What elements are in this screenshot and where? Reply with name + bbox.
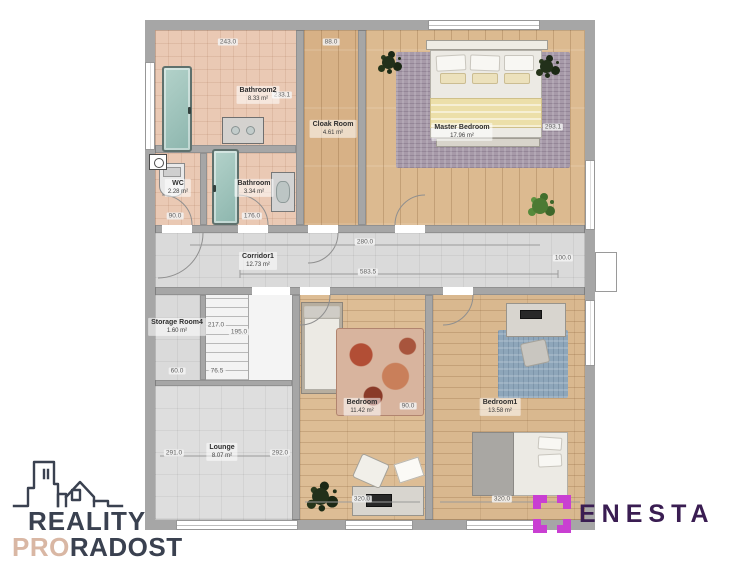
dimension-label: 60.0 [169, 368, 186, 375]
pillow [472, 73, 498, 84]
dimension-label: 320.0 [492, 496, 512, 503]
room-label-wc: WC2.28 m² [165, 179, 191, 197]
room-label-bathroom2: Bathroom28.33 m² [237, 86, 280, 104]
room-name: Cloak Room [313, 121, 354, 130]
room-name: Corridor1 [242, 253, 274, 262]
room-name: WC [168, 180, 188, 189]
room-name: Storage Room4 [151, 319, 203, 328]
room-label-bedroom: Bedroom11.42 m² [344, 398, 381, 416]
dimension-label: 88.0 [323, 39, 340, 46]
room-label-bathroom: Bathroom3.34 m² [234, 179, 273, 197]
room-name: Bathroom [237, 180, 270, 189]
room-name: Bedroom [347, 399, 378, 408]
dimension-label: 195.0 [229, 329, 249, 336]
shower-bathroom2 [162, 66, 192, 152]
window-bedroom-bottom [345, 520, 413, 530]
room-area: 4.61 m² [313, 130, 354, 138]
room-label-lounge: Lounge8.07 m² [206, 443, 237, 461]
bedroom1-blanket [472, 432, 514, 496]
enesta-wordmark: ENESTA [579, 500, 715, 529]
pillow [436, 54, 467, 72]
enesta-brackets-icon [533, 495, 571, 533]
room-label-master-bedroom: Master Bedroom17.96 m² [431, 123, 492, 141]
dimension-label: 583.5 [358, 269, 378, 276]
dimension-label: 100.0 [553, 255, 573, 262]
monitor-icon [520, 310, 542, 319]
floorplan-canvas: Bathroom28.33 m² WC2.28 m² Bathroom3.34 … [0, 0, 749, 562]
room-area: 12.73 m² [242, 262, 274, 270]
proradost-wordmark: PRORADOST [12, 534, 182, 561]
room-area: 11.42 m² [347, 408, 378, 416]
room-area: 1.60 m² [151, 328, 203, 336]
dimension-label: 90.0 [167, 213, 184, 220]
radost-rest: RADOST [70, 532, 183, 562]
window-lounge-bottom [176, 520, 298, 530]
room-area: 8.33 m² [240, 96, 277, 104]
plant-icon [312, 488, 329, 505]
pillow [538, 453, 563, 467]
plant-icon [382, 56, 395, 69]
enesta-logo: ENESTA [533, 495, 715, 533]
window-master-right [585, 160, 595, 230]
pillow [504, 55, 534, 71]
plant-icon [540, 60, 553, 73]
window-bathroom2-left [145, 62, 155, 150]
room-name: Bathroom2 [240, 87, 277, 96]
reality-proradost-logo: REALITY PRORADOST [12, 450, 182, 561]
dimension-label: 176.0 [242, 213, 262, 220]
room-label-bedroom1: Bedroom113.58 m² [480, 398, 521, 416]
dimension-label: 280.0 [355, 239, 375, 246]
pillow [470, 54, 501, 71]
dimension-label: 292.0 [270, 450, 290, 457]
room-name: Lounge [209, 444, 234, 453]
dimension-label: 320.0 [352, 496, 372, 503]
room-area: 17.96 m² [434, 133, 489, 141]
skyline-icon [12, 450, 140, 508]
room-label-corridor: Corridor112.73 m² [239, 252, 277, 270]
pillow [440, 73, 466, 84]
pro-accent: PRO [12, 532, 70, 562]
vanity-bathroom2 [222, 117, 264, 144]
washer-icon [149, 154, 167, 170]
pillow [538, 436, 563, 451]
dimension-label: 217.0 [206, 322, 226, 329]
room-label-cloakroom: Cloak Room4.61 m² [310, 120, 357, 138]
bedroom-mattress [304, 318, 340, 390]
dimension-label: 76.5 [209, 368, 226, 375]
dimension-label: 90.0 [400, 403, 417, 410]
reality-wordmark: REALITY [28, 508, 182, 534]
shower-handle-2 [213, 185, 216, 192]
room-area: 13.58 m² [483, 408, 518, 416]
window-bedroom1-bottom [466, 520, 534, 530]
utility-box-right [595, 252, 617, 292]
plant-icon [532, 198, 548, 214]
room-name: Master Bedroom [434, 124, 489, 133]
master-headboard [426, 40, 548, 50]
dimension-label: 293.1 [543, 124, 563, 131]
shower-handle [188, 107, 191, 114]
room-area: 2.28 m² [168, 189, 188, 197]
room-area: 3.34 m² [237, 189, 270, 197]
pillow [304, 306, 340, 318]
window-master-top [428, 20, 540, 30]
bedroom1-desk [506, 303, 566, 337]
pillow [504, 73, 530, 84]
room-label-storage: Storage Room41.60 m² [148, 318, 206, 336]
sink-bathroom [271, 172, 295, 212]
room-area: 8.07 m² [209, 453, 234, 461]
dimension-label: 243.0 [218, 39, 238, 46]
window-bedroom1-right [585, 300, 595, 366]
room-name: Bedroom1 [483, 399, 518, 408]
